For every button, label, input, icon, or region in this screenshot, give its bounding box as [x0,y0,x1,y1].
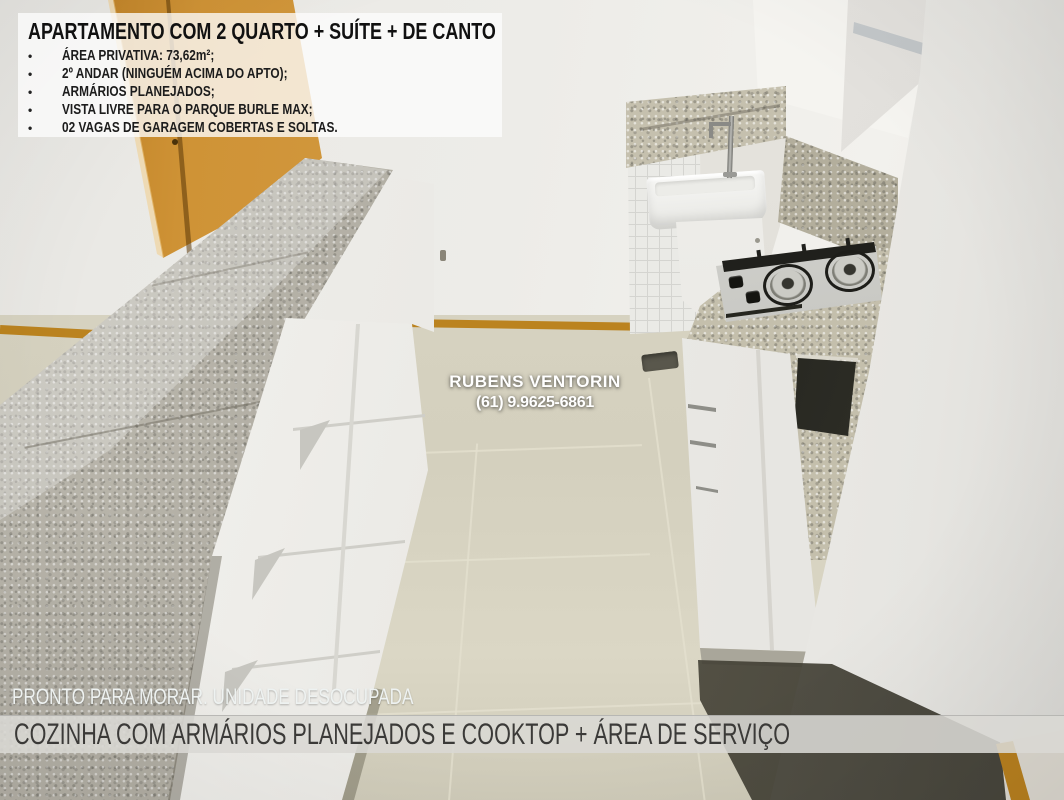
info-box: APARTAMENTO COM 2 QUARTO + SUÍTE + DE CA… [18,13,502,137]
list-item: • 2º ANDAR (NINGUÉM ACIMA DO APTO); [28,65,411,83]
feature-text: 2º ANDAR (NINGUÉM ACIMA DO APTO); [62,65,288,82]
listing-title: APARTAMENTO COM 2 QUARTO + SUÍTE + DE CA… [28,18,496,45]
list-item: • 02 VAGAS DE GARAGEM COBERTAS E SOLTAS. [28,119,411,137]
list-item: • ARMÁRIOS PLANEJADOS; [28,83,411,101]
bullet-icon: • [28,67,62,81]
bullet-icon: • [28,85,62,99]
status-line: PRONTO PARA MORAR. UNIDADE DESOCUPADA [12,684,413,710]
feature-text: VISTA LIVRE PARA O PARQUE BURLE MAX; [62,101,313,118]
caption-text: COZINHA COM ARMÁRIOS PLANEJADOS E COOKTO… [14,718,790,752]
feature-text: ÁREA PRIVATIVA: 73,62m²; [62,47,214,64]
feature-list: • ÁREA PRIVATIVA: 73,62m²; • 2º ANDAR (N… [28,47,411,137]
listing-photo: APARTAMENTO COM 2 QUARTO + SUÍTE + DE CA… [0,0,1064,800]
agent-phone: (61) 9.9625-6861 [408,392,662,413]
bullet-icon: • [28,121,62,135]
feature-text: 02 VAGAS DE GARAGEM COBERTAS E SOLTAS. [62,119,338,136]
feature-text: ARMÁRIOS PLANEJADOS; [62,83,215,100]
bullet-icon: • [28,49,62,63]
list-item: • VISTA LIVRE PARA O PARQUE BURLE MAX; [28,101,411,119]
agent-name: RUBENS VENTORIN [408,371,662,392]
caption-bar: COZINHA COM ARMÁRIOS PLANEJADOS E COOKTO… [0,715,1064,753]
agent-watermark: RUBENS VENTORIN (61) 9.9625-6861 [408,371,662,413]
bullet-icon: • [28,103,62,117]
list-item: • ÁREA PRIVATIVA: 73,62m²; [28,47,411,65]
